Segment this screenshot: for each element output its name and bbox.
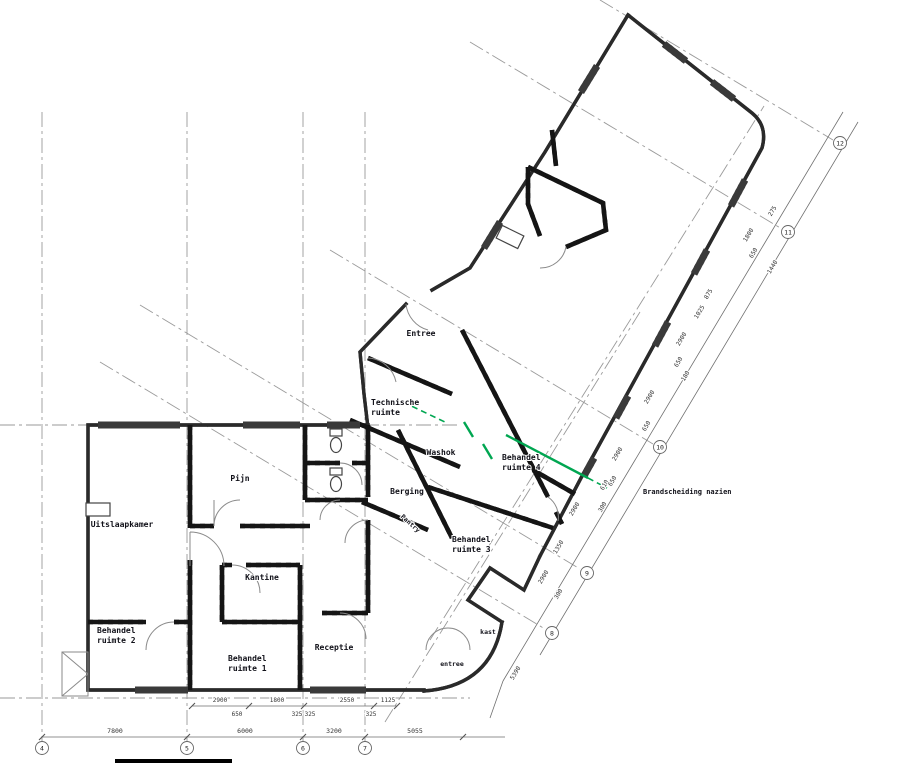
grid-bubble-8: 8 (546, 627, 559, 640)
dim-label: 1800 (270, 697, 285, 704)
toilet-icon (330, 468, 342, 492)
dim-label: 5055 (407, 727, 423, 735)
svg-text:6: 6 (301, 744, 305, 752)
floor-plan-page: UitslaapkamerPijnBehandelruimte 2Kantine… (0, 0, 899, 765)
dim-label: 2900 (213, 697, 228, 704)
room-label-behandel-ruimte-1: Behandelruimte 1 (228, 654, 267, 673)
windows-layer (98, 44, 745, 690)
svg-text:7: 7 (363, 744, 367, 752)
dim-label: 300 (553, 587, 565, 600)
dim-label: 180 (680, 369, 692, 382)
dim-label: 325 (292, 711, 303, 718)
room-label-receptie: Receptie (315, 642, 354, 652)
dim-label: 2900 (675, 331, 689, 347)
dim-label: 875 (703, 287, 715, 300)
dim-label: 2550 (340, 697, 355, 704)
toilet-icon (330, 429, 342, 453)
dim-label: 1025 (693, 304, 707, 320)
room-label-pijn: Pijn (230, 473, 249, 483)
svg-text:10: 10 (656, 443, 664, 451)
walls-interior (88, 130, 606, 690)
dim-label: 1125 (381, 697, 396, 704)
room-label-behandel-ruimte-3: Behandelruimte 3 (452, 535, 491, 554)
dim-label: 2900 (537, 569, 551, 585)
svg-text:12: 12 (836, 139, 844, 147)
dim-label: 3200 (326, 727, 342, 735)
svg-text:9: 9 (585, 569, 589, 577)
dim-label: 650 (673, 355, 685, 368)
grid-bubble-12: 12 (834, 137, 847, 150)
floor-plan-drawing: UitslaapkamerPijnBehandelruimte 2Kantine… (0, 0, 899, 765)
grid-bubble-5: 5 (181, 742, 194, 755)
closet-box (496, 225, 524, 248)
dim-label: 1800 (742, 227, 756, 243)
grid-bubble-11: 11 (782, 226, 795, 239)
room-label-berging: Berging (390, 486, 424, 496)
grid-bubble-9: 9 (581, 567, 594, 580)
room-label-behandel-ruimte-4: Behandelruimte 4 (502, 453, 541, 472)
room-label-kantine: Kantine (245, 572, 279, 582)
annotation-brandscheiding: Brandscheiding nazien (643, 488, 732, 496)
grid-bubble-7: 7 (359, 742, 372, 755)
svg-text:5: 5 (185, 744, 189, 752)
grid-bubble-4: 4 (36, 742, 49, 755)
dim-label: 650 (607, 474, 619, 487)
dim-label: 275 (767, 204, 779, 217)
dim-label: 1440 (766, 259, 780, 275)
room-label-entree-main: Entree (407, 329, 436, 338)
room-label-uitslaapkamer: Uitslaapkamer (91, 519, 154, 529)
annotations-layer: Brandscheiding nazien (643, 488, 732, 496)
dim-label: 325 (366, 711, 377, 718)
dim-label: 650 (641, 419, 653, 432)
svg-text:4: 4 (40, 744, 44, 752)
dim-label: 1350 (552, 539, 566, 555)
dim-label: 2900 (611, 446, 625, 462)
dim-label: 2900 (643, 389, 657, 405)
dim-label: 2900 (568, 501, 582, 517)
room-label-washok: Washok (427, 448, 456, 457)
pilaster (86, 503, 110, 516)
svg-text:11: 11 (784, 228, 792, 236)
room-label-entree-lower: entree (440, 660, 464, 668)
room-label-behandel-ruimte-2: Behandelruimte 2 (97, 626, 136, 645)
grid-bubble-10: 10 (654, 441, 667, 454)
dim-label: 7800 (107, 727, 123, 735)
dim-label: 650 (232, 711, 243, 718)
svg-text:8: 8 (550, 629, 554, 637)
grid-bubble-6: 6 (297, 742, 310, 755)
dim-label: 650 (748, 246, 760, 259)
dim-label: 6000 (237, 727, 253, 735)
room-label-kast: kast (480, 628, 496, 636)
dim-label: 325 (305, 711, 316, 718)
